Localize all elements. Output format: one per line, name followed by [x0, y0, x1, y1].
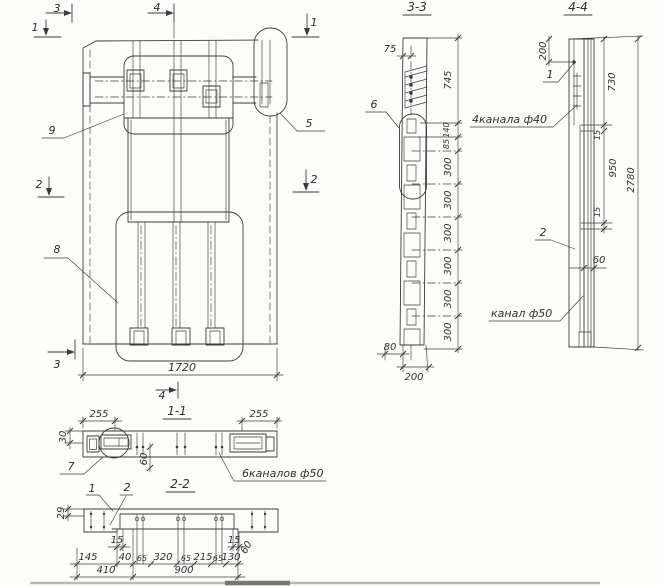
section-1-1: 1-1 255 255: [58, 404, 326, 481]
dim-65b-label: 65: [181, 554, 191, 563]
section-marker-3-bottom: 3: [48, 340, 75, 371]
dim-215-label: 215: [193, 552, 212, 563]
dim-300-label-3: 300: [443, 223, 454, 242]
dim-60-label: 60: [139, 453, 150, 466]
marker-1-top-left-label: 1: [32, 21, 39, 34]
section-marker-2-right: 2: [293, 170, 319, 192]
section-4-4-label-channels: 4канала ф40: [470, 105, 577, 127]
plan-detail5-loop: [254, 28, 287, 116]
dim-2780-label: 2780: [626, 167, 637, 192]
panel-working-drawing: 3 4 1 1 2 2 3: [0, 0, 663, 586]
label-6-channels-d50: 6каналов ф50: [242, 467, 323, 480]
dim-300-label-1: 300: [443, 157, 454, 176]
dim-65a-label: 65: [137, 554, 147, 563]
section-1-1-dims: 255 255 30 60: [58, 409, 282, 472]
callout-9-label: 9: [49, 124, 56, 137]
plan-view: 3 4 1 1 2 2 3: [32, 1, 326, 402]
section-3-3: 3-3 6: [365, 0, 462, 383]
section-2-2-dims: 29 15 15 60 145 40 65 320 65 215 65 130: [56, 505, 255, 580]
marker-3-top-label: 3: [54, 2, 61, 15]
plan-detail9-plate: [124, 41, 233, 222]
dim-145-label: 145: [78, 552, 97, 563]
section-marker-1-top-left: 1: [32, 20, 62, 37]
section-marker-4-bottom: 4: [156, 382, 178, 402]
dim-320-label: 320: [153, 552, 172, 563]
dim-730-label: 730: [607, 72, 618, 91]
dim-900-label: 900: [174, 565, 193, 576]
dim-130-label: 130: [221, 552, 240, 563]
dim-40-label: 40: [119, 552, 132, 563]
section-2-2-callout-2: 2: [110, 481, 133, 525]
section-2-2-title: 2-2: [166, 477, 195, 492]
section-3-3-title: 3-3: [403, 0, 431, 15]
dim-200-label: 200: [404, 372, 423, 383]
plan-callout-5: 5: [280, 113, 325, 131]
callout-6-label: 6: [371, 98, 378, 111]
section-4-4-title: 4-4: [564, 0, 592, 15]
dim-140-label: 140: [442, 122, 451, 137]
dim-410-label: 410: [96, 565, 115, 576]
section-2-2: 2-2 1 2 29: [56, 477, 278, 580]
callout-1-label: 1: [547, 68, 554, 81]
dim-200-top-label: 200: [538, 41, 549, 60]
section-3-3-body: [400, 38, 428, 345]
label-4-channels-d40: 4канала ф40: [472, 113, 547, 126]
dim-80-label: 80: [384, 342, 397, 353]
dim-60-label-22: 60: [239, 539, 255, 556]
section-4-4: 4-4 1 4канала ф40 2: [470, 0, 643, 351]
callout-1-label-22: 1: [89, 482, 96, 495]
plan-callout-8: 8: [44, 243, 118, 303]
dim-30-label: 30: [58, 431, 69, 444]
dim-255-left-label: 255: [89, 409, 108, 420]
dim-15-upper-label: 15: [593, 130, 602, 140]
section-marker-2-left: 2: [36, 177, 65, 197]
section-1-1-title: 1-1: [163, 404, 191, 419]
dim-85-label: 85: [442, 139, 451, 149]
section-4-4-body: [569, 39, 594, 347]
plan-dim-1720: 1720: [78, 348, 283, 381]
section-1-1-title-label: 1-1: [167, 404, 187, 418]
dim-29-label: 29: [56, 507, 67, 520]
callout-7-label: 7: [68, 460, 75, 473]
dim-300-label-5: 300: [443, 289, 454, 308]
section-3-3-callout-6: 6: [365, 98, 399, 128]
section-marker-4-top: 4: [148, 1, 174, 38]
section-3-3-dims: 75 745 140 85 300 300 300 300 300 300 80…: [377, 34, 462, 383]
dim-1720-label: 1720: [168, 361, 196, 374]
drawing-sheet: 3 4 1 1 2 2 3: [0, 0, 663, 586]
section-2-2-title-label: 2-2: [170, 477, 190, 491]
dim-255-right-label: 255: [249, 409, 268, 420]
section-marker-1-top-right: 1: [292, 14, 319, 37]
marker-4-bottom-label: 4: [159, 389, 166, 402]
dim-15-lower-label: 15: [593, 207, 602, 217]
marker-2-left-label: 2: [36, 178, 43, 191]
dim-745-label: 745: [443, 70, 454, 89]
section-4-4-dims: 200 730 15 950 15 60 2780: [538, 36, 643, 351]
dim-300-label-2: 300: [443, 190, 454, 209]
marker-2-right-label: 2: [311, 173, 318, 186]
section-1-1-body: [83, 428, 277, 458]
section-marker-3-top: 3: [46, 2, 72, 22]
marker-1-top-right-label: 1: [311, 16, 318, 29]
dim-75-label: 75: [384, 44, 397, 55]
section-1-1-callout-7: 7: [60, 457, 103, 474]
callout-2-label: 2: [540, 226, 547, 239]
section-3-3-title-label: 3-3: [407, 0, 427, 14]
detail7-circle: [99, 428, 129, 458]
plan-detail8-plate: [116, 212, 243, 361]
marker-4-top-label: 4: [154, 1, 161, 14]
dim-60-wall-label: 60: [593, 255, 606, 266]
dim-300-label-4: 300: [443, 256, 454, 275]
callout-2-label-22: 2: [124, 481, 131, 494]
dim-15-right-label: 15: [228, 535, 241, 546]
dim-950-label: 950: [608, 158, 619, 177]
section-2-2-callout-1: 1: [86, 482, 113, 511]
label-channel-d50: канал ф50: [491, 307, 552, 320]
callout-5-label: 5: [306, 117, 313, 130]
plan-top-band: [83, 73, 272, 106]
dim-300-label-6: 300: [443, 322, 454, 341]
detail6-oval: [400, 114, 427, 199]
marker-3-bottom-label: 3: [54, 358, 61, 371]
callout-8-label: 8: [54, 243, 61, 256]
dim-15-left-label: 15: [111, 535, 124, 546]
section-4-4-title-label: 4-4: [568, 0, 588, 14]
